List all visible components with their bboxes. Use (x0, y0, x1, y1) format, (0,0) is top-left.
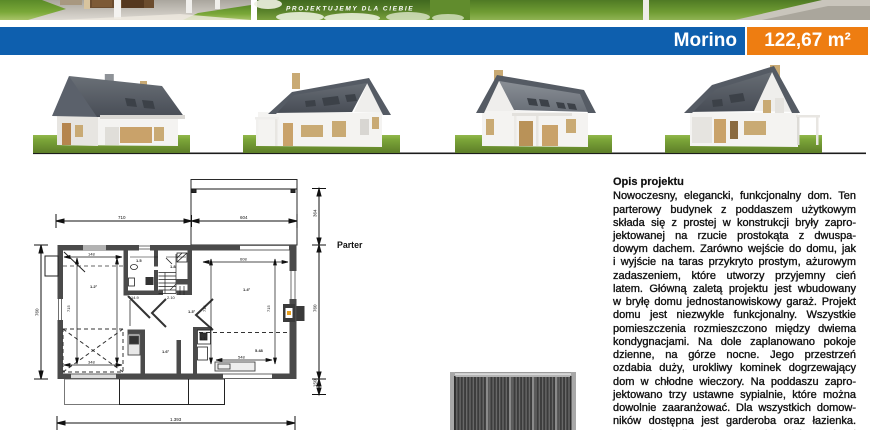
svg-text:1.8: 1.8 (170, 264, 176, 269)
svg-text:760: 760 (313, 304, 318, 312)
svg-text:150: 150 (313, 379, 318, 387)
svg-text:1.4²: 1.4² (243, 287, 251, 292)
svg-text:364: 364 (313, 209, 318, 217)
svg-text:2.10: 2.10 (167, 295, 176, 300)
svg-text:348: 348 (88, 360, 95, 365)
svg-text:715: 715 (202, 305, 207, 312)
svg-text:1.2²: 1.2² (90, 284, 98, 289)
svg-text:Parter: Parter (337, 240, 363, 250)
svg-text:148: 148 (88, 252, 95, 257)
svg-text:608: 608 (240, 257, 247, 262)
svg-text:1.3²: 1.3² (188, 309, 196, 314)
svg-text:710: 710 (118, 215, 126, 220)
svg-text:548: 548 (238, 355, 245, 360)
svg-text:1.5: 1.5 (136, 258, 142, 263)
svg-text:14.9: 14.9 (131, 295, 140, 300)
svg-text:715: 715 (266, 305, 271, 312)
svg-text:5.48: 5.48 (255, 348, 264, 353)
svg-text:1.393: 1.393 (170, 417, 182, 422)
svg-text:1.7: 1.7 (200, 336, 206, 341)
svg-text:604: 604 (240, 215, 248, 220)
svg-text:715: 715 (66, 305, 71, 312)
svg-text:760: 760 (35, 308, 40, 316)
svg-text:1.6²: 1.6² (162, 349, 170, 354)
